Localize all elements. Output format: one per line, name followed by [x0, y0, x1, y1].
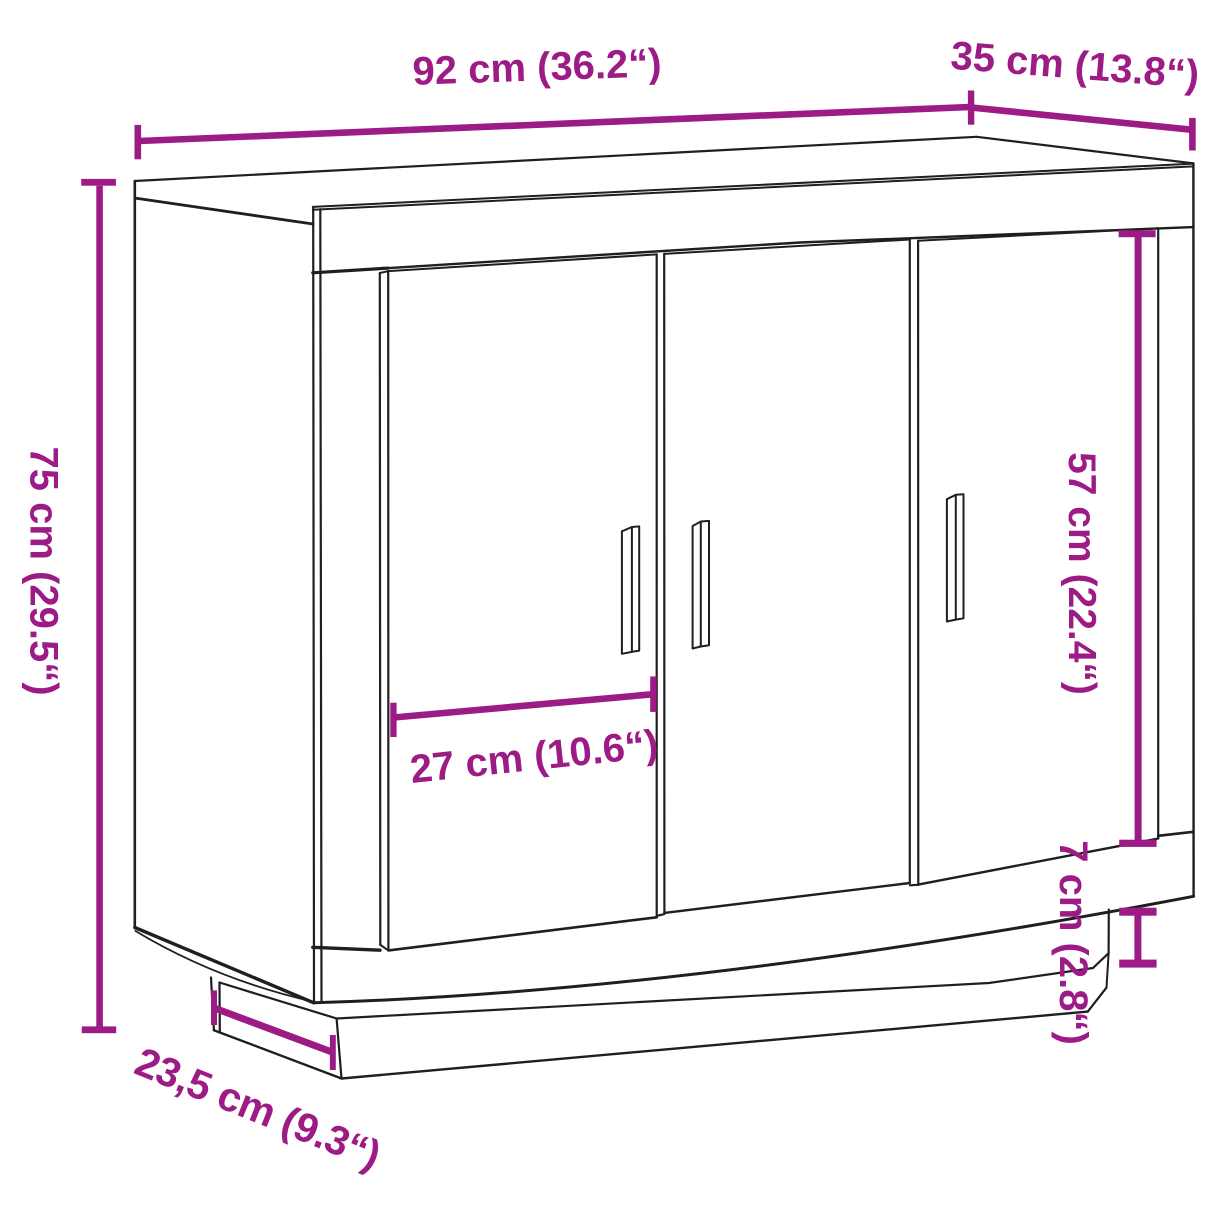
svg-text:23,5 cm (9.3“): 23,5 cm (9.3“) — [129, 1038, 387, 1178]
svg-text:75 cm (29.5“): 75 cm (29.5“) — [22, 446, 66, 695]
svg-text:57 cm (22.4“): 57 cm (22.4“) — [1060, 452, 1103, 695]
svg-text:7 cm (2.8“): 7 cm (2.8“) — [1051, 840, 1095, 1045]
svg-text:92 cm (36.2“): 92 cm (36.2“) — [412, 41, 662, 94]
svg-text:35 cm (13.8“): 35 cm (13.8“) — [949, 34, 1201, 97]
svg-text:27 cm (10.6“): 27 cm (10.6“) — [408, 722, 660, 792]
